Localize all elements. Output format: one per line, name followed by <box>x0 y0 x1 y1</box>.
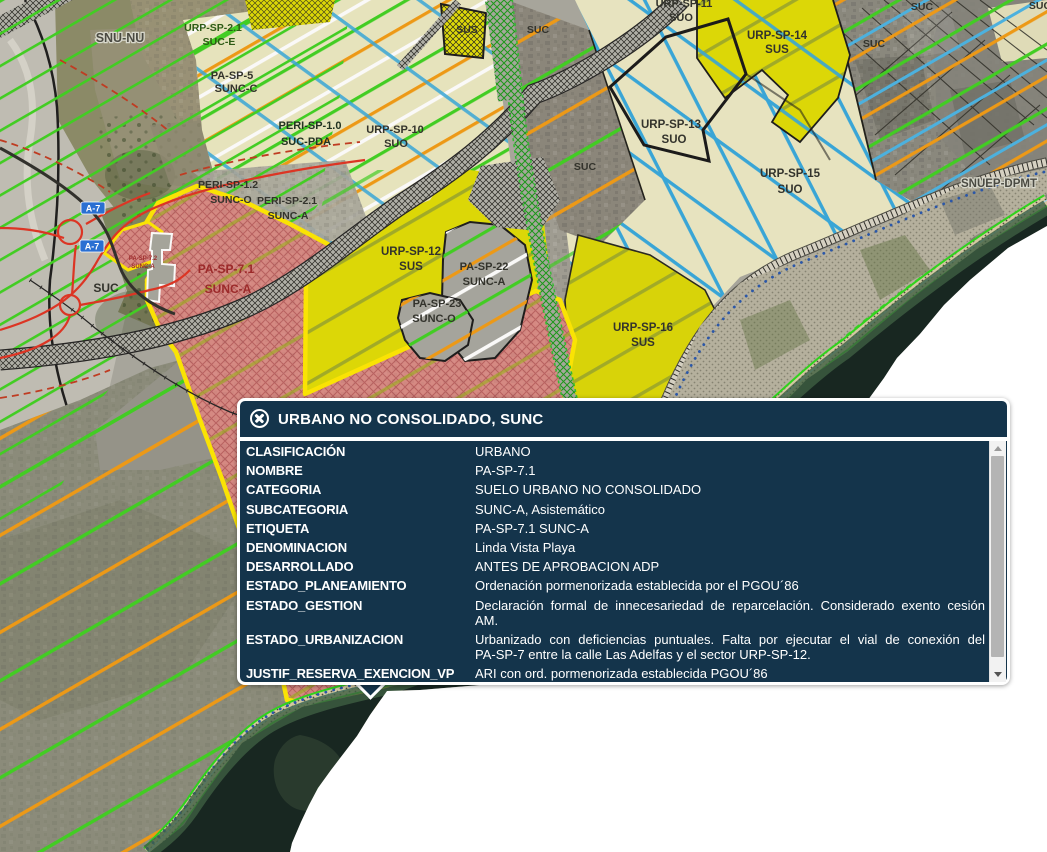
svg-text:A-7: A-7 <box>86 204 101 214</box>
svg-text:SUO: SUO <box>662 134 687 146</box>
svg-text:PERI-SP-1.0: PERI-SP-1.0 <box>279 120 342 132</box>
svg-text:SUNC-O: SUNC-O <box>210 194 251 206</box>
svg-text:SUC-E: SUC-E <box>203 36 236 48</box>
svg-text:SUO: SUO <box>384 138 408 150</box>
svg-text:SUC: SUC <box>911 1 934 13</box>
svg-text:SUNC-A: SUNC-A <box>268 210 309 222</box>
svg-text:URP-SP-11: URP-SP-11 <box>656 0 713 10</box>
svg-text:PA-SP-23: PA-SP-23 <box>413 298 462 310</box>
svg-text:PERI-SP-1.2: PERI-SP-1.2 <box>198 179 258 191</box>
svg-text:SUS: SUS <box>631 337 655 349</box>
svg-text:SUNC-C: SUNC-C <box>215 83 258 95</box>
svg-text:SUC: SUC <box>1029 0 1047 12</box>
svg-text:PA-SP-7.1: PA-SP-7.1 <box>198 262 255 276</box>
svg-text:URP-SP-16: URP-SP-16 <box>613 322 673 334</box>
svg-text:URP-SP-13: URP-SP-13 <box>641 119 701 131</box>
svg-text:SUC: SUC <box>574 161 597 173</box>
svg-text:SUS: SUS <box>765 44 789 56</box>
svg-text:A-7: A-7 <box>85 242 100 252</box>
svg-text:SUO: SUO <box>669 12 693 24</box>
svg-text:SUS: SUS <box>456 24 478 36</box>
svg-text:URP-SP-12: URP-SP-12 <box>381 246 441 258</box>
svg-text:SUO: SUO <box>778 184 803 196</box>
svg-text:SUNC-A: SUNC-A <box>205 282 252 296</box>
svg-text:SUNC-O: SUNC-O <box>412 313 456 325</box>
svg-text:SUC: SUC <box>863 38 886 50</box>
svg-text:SUC: SUC <box>93 281 119 295</box>
svg-text:SUC: SUC <box>527 24 550 36</box>
svg-text:PA-SP-5: PA-SP-5 <box>211 70 254 82</box>
svg-text:URP-SP-15: URP-SP-15 <box>760 168 821 180</box>
svg-text:SUS: SUS <box>399 261 423 273</box>
svg-text:SNU-NU: SNU-NU <box>96 31 145 45</box>
svg-text:PA-SP-22: PA-SP-22 <box>460 261 509 273</box>
svg-text:URP-SP-10: URP-SP-10 <box>366 124 423 136</box>
svg-text:SUNC-A: SUNC-A <box>463 276 506 288</box>
svg-text:URP-SP-2.1: URP-SP-2.1 <box>184 22 242 34</box>
svg-text:PA-SP-7.2: PA-SP-7.2 <box>129 256 158 262</box>
svg-text:SUNC-A: SUNC-A <box>131 264 155 270</box>
svg-text:PERI-SP-2.1: PERI-SP-2.1 <box>257 195 317 207</box>
svg-text:SUC-PDA: SUC-PDA <box>281 136 331 148</box>
svg-text:SNUEP-DPMT: SNUEP-DPMT <box>961 178 1037 190</box>
svg-text:URP-SP-14: URP-SP-14 <box>747 30 808 42</box>
